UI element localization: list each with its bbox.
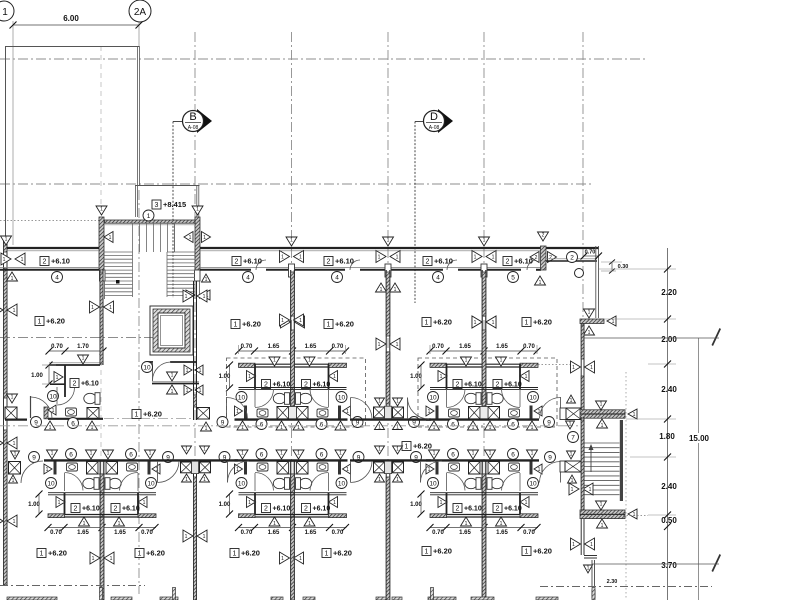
svg-text:10: 10 (338, 394, 346, 401)
svg-text:6: 6 (260, 421, 264, 428)
svg-text:2: 2 (264, 505, 268, 512)
svg-text:1: 1 (138, 550, 142, 557)
svg-text:6: 6 (451, 421, 455, 428)
svg-text:1: 1 (428, 467, 431, 473)
svg-text:1: 1 (186, 388, 189, 394)
svg-text:10: 10 (429, 394, 437, 401)
svg-text:1: 1 (346, 467, 349, 473)
svg-text:1: 1 (531, 451, 534, 457)
svg-text:2: 2 (43, 258, 47, 265)
svg-text:1.00: 1.00 (28, 502, 40, 508)
svg-text:1.65: 1.65 (305, 530, 317, 536)
svg-text:1: 1 (11, 276, 14, 282)
svg-text:1: 1 (380, 287, 383, 293)
svg-text:1: 1 (525, 548, 529, 555)
svg-text:1: 1 (203, 294, 206, 300)
svg-text:0.50: 0.50 (661, 516, 677, 525)
svg-text:2: 2 (73, 380, 77, 387)
svg-text:+8.415: +8.415 (163, 200, 186, 209)
svg-text:1: 1 (327, 321, 331, 328)
svg-text:+6.10: +6.10 (464, 506, 482, 513)
svg-text:+6.20: +6.20 (46, 317, 65, 326)
svg-text:1: 1 (100, 207, 103, 213)
svg-text:1: 1 (38, 318, 42, 325)
svg-text:1: 1 (14, 452, 17, 458)
svg-text:1: 1 (297, 451, 300, 457)
svg-text:1: 1 (5, 237, 8, 243)
svg-text:9: 9 (547, 419, 551, 426)
svg-text:+6.20: +6.20 (413, 442, 432, 451)
svg-text:2: 2 (114, 505, 118, 512)
svg-text:2.40: 2.40 (661, 482, 677, 491)
svg-text:1: 1 (273, 521, 276, 527)
svg-text:1: 1 (185, 534, 188, 540)
svg-text:0.70: 0.70 (51, 344, 63, 350)
svg-text:1: 1 (440, 500, 443, 506)
svg-text:4: 4 (246, 274, 250, 281)
svg-text:1: 1 (143, 500, 146, 506)
svg-text:1: 1 (387, 238, 390, 244)
svg-text:1: 1 (465, 358, 468, 364)
svg-text:1: 1 (571, 478, 574, 484)
svg-text:0.70: 0.70 (141, 530, 153, 536)
svg-text:1.65: 1.65 (459, 530, 471, 536)
svg-text:1: 1 (186, 368, 189, 374)
svg-text:1: 1 (281, 255, 284, 261)
svg-text:1.65: 1.65 (496, 530, 508, 536)
svg-text:1: 1 (428, 409, 431, 415)
svg-text:1: 1 (118, 521, 121, 527)
svg-text:1.00: 1.00 (31, 373, 43, 379)
svg-text:1: 1 (396, 424, 399, 430)
svg-text:1: 1 (248, 500, 251, 506)
svg-text:+6.20: +6.20 (335, 320, 354, 329)
svg-text:+6.10: +6.10 (313, 506, 331, 513)
svg-text:1: 1 (474, 255, 477, 261)
svg-text:+6.20: +6.20 (433, 547, 452, 556)
svg-text:1: 1 (525, 500, 528, 506)
svg-text:1: 1 (633, 512, 636, 518)
svg-text:1: 1 (13, 519, 16, 525)
svg-text:1: 1 (600, 502, 603, 508)
svg-text:1: 1 (333, 374, 336, 380)
svg-text:2.40: 2.40 (661, 385, 677, 394)
svg-text:0.70: 0.70 (585, 250, 596, 256)
svg-text:1: 1 (11, 395, 14, 401)
svg-text:6: 6 (69, 451, 73, 458)
svg-text:2: 2 (426, 258, 430, 265)
svg-text:2: 2 (570, 254, 574, 261)
svg-text:6: 6 (511, 451, 515, 458)
svg-text:+6.10: +6.10 (434, 257, 453, 266)
svg-text:1: 1 (83, 521, 86, 527)
svg-text:0.70: 0.70 (432, 530, 444, 536)
svg-text:2A: 2A (134, 7, 147, 18)
svg-text:1: 1 (199, 368, 202, 374)
svg-text:1.65: 1.65 (114, 530, 126, 536)
svg-text:1: 1 (489, 451, 492, 457)
svg-text:+6.10: +6.10 (243, 257, 262, 266)
svg-text:1: 1 (92, 556, 95, 562)
svg-text:1.65: 1.65 (268, 530, 280, 536)
svg-text:1: 1 (52, 408, 55, 414)
svg-text:1: 1 (56, 375, 59, 381)
svg-text:0.70: 0.70 (432, 344, 444, 350)
svg-text:1: 1 (107, 451, 110, 457)
svg-text:1: 1 (396, 399, 399, 405)
svg-text:2: 2 (496, 505, 500, 512)
svg-text:2: 2 (506, 258, 510, 265)
svg-text:9: 9 (221, 419, 225, 426)
svg-text:7: 7 (571, 434, 575, 441)
svg-text:1: 1 (236, 409, 239, 415)
svg-text:6: 6 (129, 451, 133, 458)
svg-text:1: 1 (203, 447, 206, 453)
svg-text:1: 1 (378, 424, 381, 430)
svg-text:+6.10: +6.10 (82, 506, 100, 513)
svg-text:1: 1 (185, 447, 188, 453)
svg-text:+6.10: +6.10 (514, 257, 533, 266)
svg-text:+6.20: +6.20 (146, 549, 165, 558)
svg-text:A-08: A-08 (429, 125, 440, 131)
svg-text:6.00: 6.00 (63, 14, 79, 23)
svg-text:1.70: 1.70 (77, 344, 89, 350)
svg-text:B: B (189, 111, 196, 123)
svg-text:+6.20: +6.20 (241, 549, 260, 558)
svg-text:10: 10 (338, 480, 346, 487)
svg-text:1: 1 (171, 389, 174, 395)
svg-text:1: 1 (308, 358, 311, 364)
svg-text:1: 1 (571, 487, 574, 493)
svg-text:10: 10 (529, 480, 537, 487)
svg-text:1: 1 (569, 422, 572, 428)
svg-text:1.65: 1.65 (459, 344, 471, 350)
svg-text:+6.10: +6.10 (273, 506, 291, 513)
svg-text:10: 10 (143, 364, 151, 371)
svg-text:2.30: 2.30 (607, 579, 618, 585)
svg-text:6: 6 (320, 421, 324, 428)
svg-text:1: 1 (378, 342, 381, 348)
svg-text:2: 2 (542, 233, 545, 239)
svg-text:1: 1 (601, 423, 604, 429)
svg-text:1: 1 (299, 255, 302, 261)
svg-text:1.65: 1.65 (268, 344, 280, 350)
svg-text:1: 1 (425, 548, 429, 555)
svg-text:1: 1 (590, 542, 593, 548)
svg-text:1: 1 (290, 238, 293, 244)
svg-text:0.70: 0.70 (50, 530, 62, 536)
svg-text:1: 1 (588, 310, 591, 316)
svg-text:1: 1 (612, 319, 615, 325)
svg-text:1.65: 1.65 (496, 344, 508, 350)
svg-text:1: 1 (3, 257, 6, 263)
svg-text:1: 1 (299, 318, 302, 324)
svg-text:9: 9 (548, 454, 552, 461)
svg-text:0.70: 0.70 (241, 344, 253, 350)
svg-text:1: 1 (189, 235, 192, 241)
svg-text:0.70: 0.70 (523, 344, 535, 350)
svg-text:2: 2 (549, 255, 552, 261)
svg-text:1: 1 (396, 447, 399, 453)
svg-text:1: 1 (572, 365, 575, 371)
svg-text:4: 4 (55, 274, 59, 281)
svg-text:+6.20: +6.20 (143, 410, 162, 419)
svg-text:1: 1 (91, 305, 94, 311)
svg-text:2: 2 (535, 255, 538, 261)
svg-text:1: 1 (405, 443, 409, 450)
svg-text:2: 2 (456, 505, 460, 512)
svg-text:+6.20: +6.20 (333, 549, 352, 558)
svg-text:1: 1 (12, 478, 15, 484)
svg-text:D: D (430, 111, 438, 123)
svg-text:+6.10: +6.10 (122, 506, 140, 513)
svg-text:+6.10: +6.10 (504, 506, 522, 513)
svg-text:1: 1 (90, 451, 93, 457)
svg-text:1: 1 (525, 374, 528, 380)
svg-text:1: 1 (149, 451, 152, 457)
svg-text:1: 1 (570, 398, 573, 404)
svg-text:1: 1 (280, 425, 283, 431)
svg-text:1: 1 (440, 374, 443, 380)
svg-text:10: 10 (429, 480, 437, 487)
svg-text:1: 1 (109, 305, 112, 311)
svg-text:1: 1 (500, 358, 503, 364)
svg-text:4: 4 (436, 274, 440, 281)
svg-text:1: 1 (483, 238, 486, 244)
svg-text:1: 1 (199, 388, 202, 394)
svg-text:1: 1 (333, 500, 336, 506)
svg-text:1: 1 (185, 294, 188, 300)
svg-text:1: 1 (492, 255, 495, 261)
svg-text:+6.10: +6.10 (51, 257, 70, 266)
svg-text:1: 1 (500, 521, 503, 527)
svg-text:1: 1 (378, 477, 381, 483)
svg-text:1: 1 (394, 287, 397, 293)
svg-text:10: 10 (238, 480, 246, 487)
svg-text:1: 1 (308, 521, 311, 527)
svg-text:1: 1 (587, 566, 590, 572)
svg-text:6: 6 (260, 451, 264, 458)
svg-text:1: 1 (396, 477, 399, 483)
svg-text:+6.20: +6.20 (433, 318, 452, 327)
svg-text:1: 1 (236, 467, 239, 473)
svg-text:4: 4 (335, 274, 339, 281)
svg-text:1: 1 (46, 467, 49, 473)
svg-text:2: 2 (327, 258, 331, 265)
svg-text:1: 1 (589, 487, 592, 493)
svg-text:10: 10 (238, 394, 246, 401)
svg-text:1: 1 (281, 556, 284, 562)
svg-text:1: 1 (339, 425, 342, 431)
svg-text:1.80: 1.80 (659, 432, 675, 441)
svg-text:1: 1 (474, 320, 477, 326)
svg-text:1: 1 (40, 550, 44, 557)
svg-text:3.70: 3.70 (661, 561, 677, 570)
svg-text:1: 1 (248, 374, 251, 380)
svg-text:2.20: 2.20 (661, 288, 677, 297)
svg-text:1: 1 (538, 467, 541, 473)
svg-text:1: 1 (171, 373, 174, 379)
svg-text:+6.20: +6.20 (533, 547, 552, 556)
svg-text:1: 1 (51, 451, 54, 457)
svg-text:1: 1 (325, 550, 329, 557)
svg-text:1: 1 (2, 7, 8, 18)
svg-text:1: 1 (185, 477, 188, 483)
svg-text:1: 1 (339, 451, 342, 457)
svg-text:1.00: 1.00 (410, 374, 422, 380)
svg-text:+6.20: +6.20 (48, 549, 67, 558)
svg-text:1: 1 (203, 235, 206, 241)
svg-text:1: 1 (378, 447, 381, 453)
svg-text:6: 6 (71, 420, 75, 427)
svg-text:1.00: 1.00 (219, 374, 231, 380)
svg-text:1: 1 (346, 409, 349, 415)
svg-text:6: 6 (320, 451, 324, 458)
svg-text:1: 1 (58, 500, 61, 506)
svg-text:2: 2 (235, 258, 239, 265)
svg-text:1: 1 (13, 308, 16, 314)
svg-text:1: 1 (110, 556, 113, 562)
svg-text:1: 1 (135, 411, 139, 418)
svg-text:1: 1 (205, 426, 208, 432)
svg-text:1: 1 (633, 412, 636, 418)
svg-text:1: 1 (378, 255, 381, 261)
svg-text:15.00: 15.00 (689, 434, 710, 443)
svg-text:10: 10 (47, 480, 55, 487)
svg-text:1: 1 (601, 523, 604, 529)
svg-text:6: 6 (511, 421, 515, 428)
svg-text:+6.20: +6.20 (242, 320, 261, 329)
svg-text:1: 1 (109, 235, 112, 241)
svg-text:+6.10: +6.10 (335, 257, 354, 266)
svg-text:+6.10: +6.10 (81, 381, 99, 388)
svg-text:1: 1 (203, 534, 206, 540)
svg-text:1: 1 (21, 257, 24, 263)
svg-text:1: 1 (465, 521, 468, 527)
svg-text:9: 9 (34, 419, 38, 426)
svg-text:2: 2 (304, 505, 308, 512)
svg-text:1: 1 (281, 318, 284, 324)
svg-text:0.70: 0.70 (523, 530, 535, 536)
svg-text:1: 1 (147, 213, 151, 220)
svg-text:1: 1 (196, 207, 199, 213)
svg-text:3: 3 (155, 202, 159, 209)
svg-text:1: 1 (572, 542, 575, 548)
svg-text:9: 9 (32, 454, 36, 461)
svg-text:1: 1 (396, 255, 399, 261)
svg-text:1: 1 (590, 365, 593, 371)
svg-text:1: 1 (273, 358, 276, 364)
svg-text:1: 1 (525, 319, 529, 326)
svg-text:1.65: 1.65 (77, 530, 89, 536)
svg-text:1: 1 (396, 342, 399, 348)
svg-text:1: 1 (299, 556, 302, 562)
svg-text:1: 1 (433, 451, 436, 457)
svg-text:1: 1 (233, 550, 237, 557)
svg-text:1: 1 (425, 319, 429, 326)
svg-text:+6.20: +6.20 (533, 318, 552, 327)
svg-text:1: 1 (241, 451, 244, 457)
svg-text:1: 1 (600, 402, 603, 408)
svg-text:1: 1 (588, 330, 591, 336)
svg-text:2: 2 (74, 505, 78, 512)
svg-text:1.00: 1.00 (219, 502, 231, 508)
svg-text:5: 5 (511, 274, 515, 281)
svg-text:1.00: 1.00 (410, 502, 422, 508)
svg-text:2.00: 2.00 (661, 335, 677, 344)
svg-text:1: 1 (13, 441, 16, 447)
svg-text:1: 1 (378, 399, 381, 405)
svg-text:1: 1 (205, 277, 208, 283)
svg-text:1.65: 1.65 (305, 344, 317, 350)
svg-text:10: 10 (529, 394, 537, 401)
svg-text:1: 1 (203, 477, 206, 483)
svg-text:1: 1 (570, 452, 573, 458)
svg-text:0.70: 0.70 (332, 530, 344, 536)
svg-text:0.70: 0.70 (241, 530, 253, 536)
svg-text:10: 10 (49, 393, 57, 400)
svg-text:1: 1 (539, 280, 542, 286)
svg-text:1: 1 (82, 356, 85, 362)
svg-text:1: 1 (472, 451, 475, 457)
svg-text:1: 1 (492, 320, 495, 326)
svg-text:10: 10 (147, 480, 155, 487)
svg-text:A-08: A-08 (188, 125, 199, 131)
svg-text:1: 1 (234, 321, 238, 328)
svg-text:6: 6 (451, 451, 455, 458)
svg-text:0.70: 0.70 (332, 344, 344, 350)
svg-text:1: 1 (280, 451, 283, 457)
